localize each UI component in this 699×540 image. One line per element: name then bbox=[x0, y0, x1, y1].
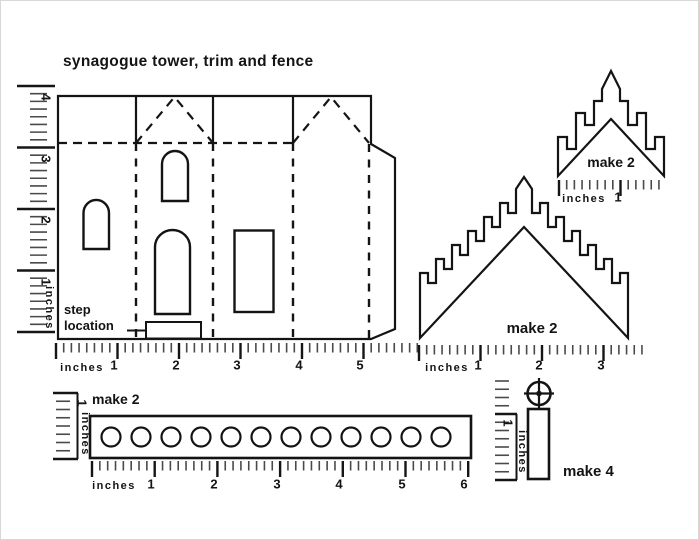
ruler-number: 3 bbox=[39, 155, 54, 162]
fence-hole bbox=[102, 428, 121, 447]
ruler-unit-label: inches bbox=[79, 412, 91, 456]
fence-hole bbox=[252, 428, 271, 447]
step-note-line1: step bbox=[64, 302, 114, 318]
fence-hole bbox=[282, 428, 301, 447]
ruler-number: 3 bbox=[233, 358, 240, 373]
ruler-unit-label: inches bbox=[562, 193, 606, 205]
ruler-number: 1 bbox=[501, 419, 516, 426]
fence-hole bbox=[432, 428, 451, 447]
fence-hole bbox=[312, 428, 331, 447]
step-location-note: step location bbox=[64, 302, 114, 334]
ruler-unit-label: inches bbox=[60, 362, 104, 374]
ruler-number: 2 bbox=[535, 358, 542, 373]
fence-hole bbox=[132, 428, 151, 447]
ruler-unit-label: inches bbox=[92, 480, 136, 492]
fence-hole bbox=[342, 428, 361, 447]
panel-divider-lines bbox=[136, 96, 293, 143]
fence-holes bbox=[102, 428, 451, 447]
ruler-number: 3 bbox=[597, 358, 604, 373]
ruler-number: 4 bbox=[39, 93, 54, 100]
post-outline bbox=[528, 409, 549, 479]
fence-make-label: make 2 bbox=[92, 391, 139, 407]
ruler-number: 6 bbox=[460, 477, 467, 492]
ruler-unit-label: inches bbox=[516, 430, 528, 474]
ruler-number: 1 bbox=[75, 399, 90, 406]
ruler-number: 2 bbox=[39, 216, 54, 223]
ruler-number: 2 bbox=[172, 358, 179, 373]
trim-large-make-label: make 2 bbox=[507, 320, 558, 337]
pattern-line-art bbox=[1, 1, 699, 540]
vertical-fold-lines bbox=[136, 143, 369, 339]
trim-small-make-label: make 2 bbox=[587, 154, 634, 170]
ruler-number: 2 bbox=[210, 477, 217, 492]
ruler-number: 1 bbox=[147, 477, 154, 492]
ruler-number: 5 bbox=[398, 477, 405, 492]
fence-piece bbox=[90, 416, 471, 458]
post-piece bbox=[524, 378, 554, 479]
pattern-sheet: synagogue tower, trim and fence step loc… bbox=[0, 0, 699, 540]
ruler-number: 5 bbox=[356, 358, 363, 373]
fence-hole bbox=[372, 428, 391, 447]
fence-hole bbox=[192, 428, 211, 447]
ruler-number: 4 bbox=[295, 358, 302, 373]
fence-hole bbox=[222, 428, 241, 447]
ruler-number: 1 bbox=[474, 358, 481, 373]
ruler-number: 3 bbox=[273, 477, 280, 492]
rectangular-window bbox=[235, 231, 274, 313]
ruler-unit-label: inches bbox=[43, 286, 55, 330]
sheet-title: synagogue tower, trim and fence bbox=[63, 53, 313, 71]
ruler-number: 1 bbox=[39, 278, 54, 285]
fence-hole bbox=[402, 428, 421, 447]
ruler-number: 1 bbox=[110, 358, 117, 373]
arched-window-lower bbox=[155, 230, 190, 314]
step-location-outline bbox=[146, 322, 201, 339]
gable-fold-line-left bbox=[136, 97, 213, 143]
post-make-label: make 4 bbox=[563, 463, 614, 480]
ruler-number: 1 bbox=[614, 190, 621, 205]
ruler-ticks bbox=[17, 86, 659, 480]
arched-window-small-left bbox=[84, 200, 110, 249]
ruler-number: 4 bbox=[335, 477, 342, 492]
arched-window-upper bbox=[162, 151, 188, 201]
step-note-line2: location bbox=[64, 318, 114, 334]
registration-mark-icon bbox=[524, 378, 554, 409]
gable-fold-line-right bbox=[293, 97, 369, 143]
fence-hole bbox=[162, 428, 181, 447]
ruler-unit-label: inches bbox=[425, 362, 469, 374]
